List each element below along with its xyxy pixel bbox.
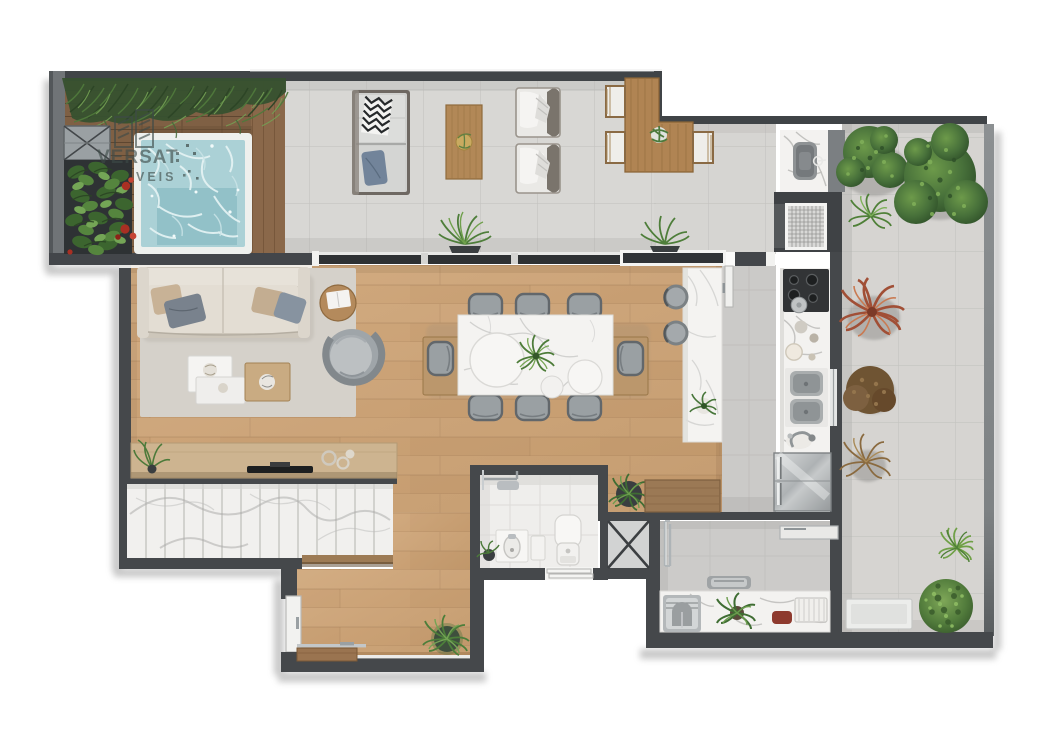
svg-text:VEIS: VEIS: [136, 170, 177, 184]
svg-text:VERSAT: VERSAT: [97, 147, 179, 168]
